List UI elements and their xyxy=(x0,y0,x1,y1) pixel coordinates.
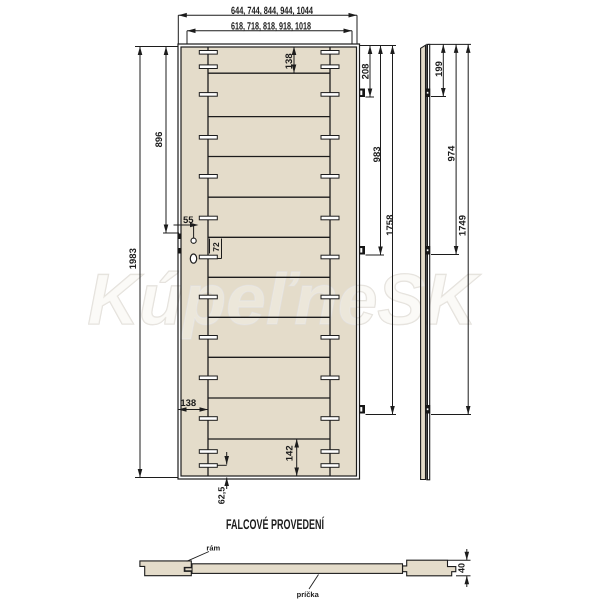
svg-text:1758: 1758 xyxy=(385,215,396,236)
svg-text:208: 208 xyxy=(360,64,371,80)
svg-text:FALCOVÉ PROVEDENÍ: FALCOVÉ PROVEDENÍ xyxy=(226,516,325,532)
svg-text:príčka: príčka xyxy=(297,590,320,599)
svg-text:72: 72 xyxy=(211,242,221,252)
svg-text:rám: rám xyxy=(206,544,220,553)
svg-text:138: 138 xyxy=(284,53,295,69)
svg-text:896: 896 xyxy=(154,132,165,148)
svg-text:62,5: 62,5 xyxy=(216,487,226,505)
svg-text:40: 40 xyxy=(456,563,466,573)
svg-text:1983: 1983 xyxy=(128,248,139,269)
svg-text:KúpeľneSK: KúpeľneSK xyxy=(88,260,482,340)
svg-text:1749: 1749 xyxy=(458,215,469,236)
svg-text:983: 983 xyxy=(372,146,383,162)
svg-text:138: 138 xyxy=(180,398,196,409)
svg-text:199: 199 xyxy=(434,61,445,77)
svg-text:974: 974 xyxy=(446,145,457,162)
svg-text:142: 142 xyxy=(285,445,296,461)
